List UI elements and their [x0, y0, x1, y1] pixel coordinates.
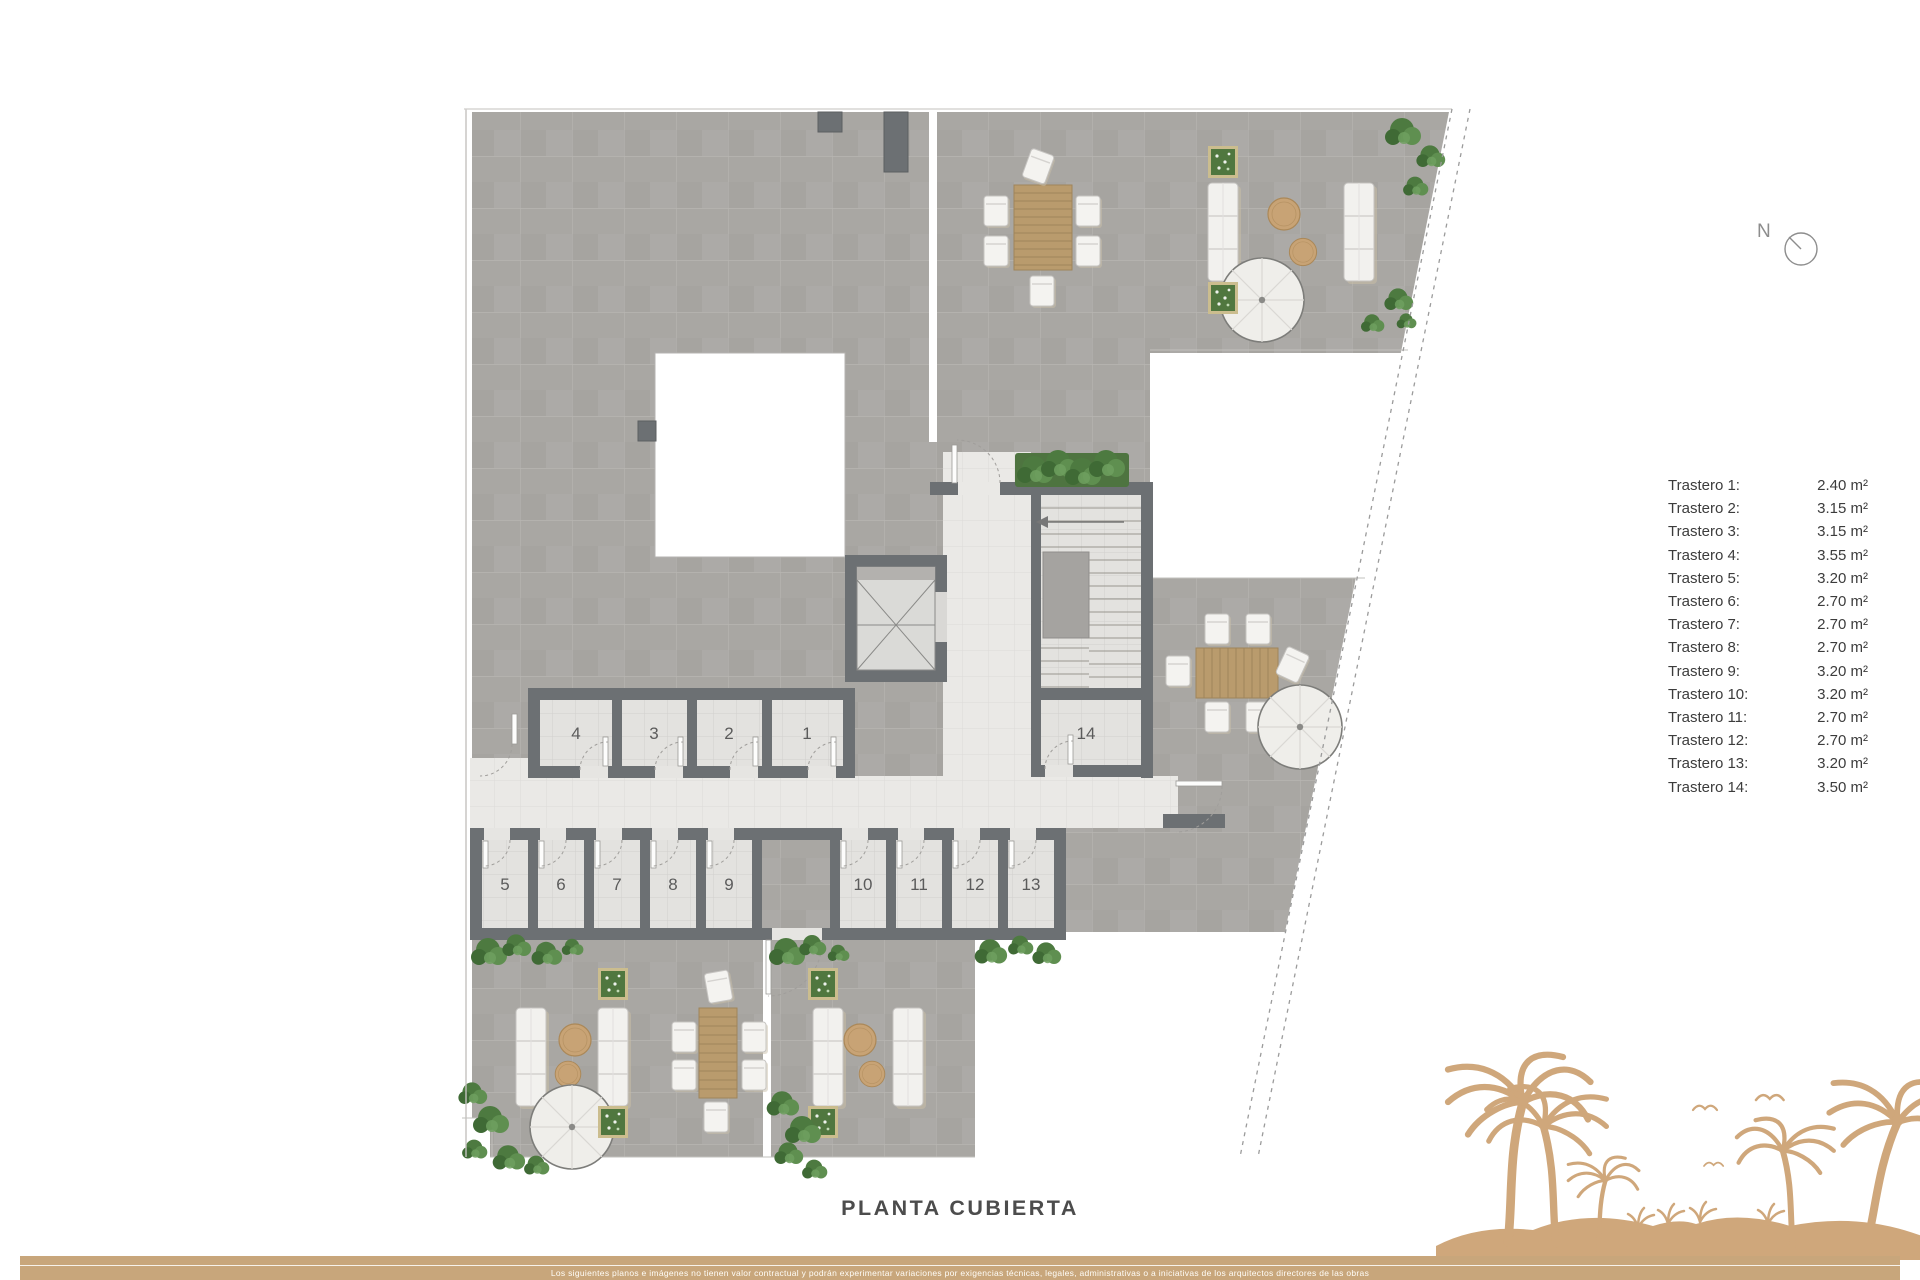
- round-table: [559, 1024, 591, 1056]
- legend-item-area: 3.20 m²: [1817, 660, 1868, 683]
- legend-item-area: 3.15 m²: [1817, 497, 1868, 520]
- legend-item-name: Trastero 6:: [1668, 590, 1740, 613]
- legend-row: Trastero 7:2.70 m²: [1668, 613, 1868, 636]
- chimney: [638, 421, 656, 441]
- legend-item-area: 2.40 m²: [1817, 474, 1868, 497]
- terrace-passage: [762, 828, 830, 940]
- planter-box: [1208, 282, 1238, 314]
- legend-item-area: 2.70 m²: [1817, 729, 1868, 752]
- legend-item-area: 3.20 m²: [1817, 752, 1868, 775]
- round-table: [1289, 238, 1316, 265]
- sofa: [813, 1008, 846, 1109]
- dining-table: [1196, 648, 1278, 698]
- room-number-label: 10: [854, 875, 873, 894]
- elevator: [857, 567, 935, 670]
- chair: [1166, 656, 1192, 688]
- legend-item-name: Trastero 8:: [1668, 636, 1740, 659]
- legend-item-name: Trastero 12:: [1668, 729, 1748, 752]
- legend-row: Trastero 5:3.20 m²: [1668, 567, 1868, 590]
- legend-item-name: Trastero 11:: [1668, 706, 1747, 729]
- round-table: [844, 1024, 876, 1056]
- planter-box: [808, 968, 838, 1000]
- legend-row: Trastero 12:2.70 m²: [1668, 729, 1868, 752]
- legend-row: Trastero 1:2.40 m²: [1668, 474, 1868, 497]
- compass-north-label: N: [1757, 221, 1771, 242]
- sofa: [893, 1008, 926, 1109]
- legend-item-name: Trastero 4:: [1668, 544, 1740, 567]
- palm-beach-graphic: [1436, 1055, 1920, 1260]
- round-table: [859, 1061, 885, 1087]
- room-number-label: 3: [649, 724, 658, 743]
- cutout-bottom-right: [975, 932, 1315, 1157]
- legend-item-name: Trastero 7:: [1668, 613, 1740, 636]
- legend-item-area: 2.70 m²: [1817, 636, 1868, 659]
- round-table: [1268, 198, 1300, 230]
- legend-item-name: Trastero 5:: [1668, 567, 1740, 590]
- legend-row: Trastero 4:3.55 m²: [1668, 544, 1868, 567]
- dining-table: [1014, 185, 1072, 270]
- chair: [672, 1060, 698, 1092]
- planter-box: [598, 968, 628, 1000]
- sofa: [598, 1008, 631, 1109]
- legend-row: Trastero 13:3.20 m²: [1668, 752, 1868, 775]
- grass-tuft: [1658, 1204, 1684, 1224]
- page-root: 1 2 3 4 5 6 7 8 9 10 11 12 13 14: [0, 0, 1920, 1280]
- room-number-label: 7: [612, 875, 621, 894]
- cutout-right: [1150, 353, 1480, 578]
- bird-icon: [1756, 1095, 1784, 1100]
- chimney: [884, 112, 908, 172]
- legend-panel: Trastero 1:2.40 m² Trastero 2:3.15 m² Tr…: [1668, 474, 1868, 799]
- room-number-label: 4: [571, 724, 580, 743]
- bush: [802, 1160, 827, 1179]
- bird-icon: [1704, 1163, 1723, 1166]
- legend-item-name: Trastero 13:: [1668, 752, 1748, 775]
- chair: [984, 236, 1010, 268]
- legend-row: Trastero 3:3.15 m²: [1668, 520, 1868, 543]
- room-number-label: 12: [966, 875, 985, 894]
- legend-item-area: 3.55 m²: [1817, 544, 1868, 567]
- round-table: [555, 1061, 581, 1087]
- legend-row: Trastero 10:3.20 m²: [1668, 683, 1868, 706]
- chimney: [818, 112, 842, 132]
- room-number-label: 2: [724, 724, 733, 743]
- parasol: [1258, 685, 1342, 769]
- sofa: [1344, 183, 1377, 284]
- room-number-label: 5: [500, 875, 509, 894]
- legend-item-name: Trastero 9:: [1668, 660, 1740, 683]
- legend-item-area: 2.70 m²: [1817, 590, 1868, 613]
- legend-row: Trastero 14:3.50 m²: [1668, 776, 1868, 799]
- footer-bar: Los siguientes planos e imágenes no tien…: [20, 1256, 1900, 1280]
- sofa: [516, 1008, 549, 1109]
- cutout-left: [655, 353, 845, 557]
- chair: [704, 969, 735, 1005]
- legend-item-area: 3.15 m²: [1817, 520, 1868, 543]
- palm-tree: [1448, 1055, 1591, 1242]
- grass-tuft: [1690, 1202, 1716, 1222]
- chair: [1076, 236, 1102, 268]
- legend-item-area: 3.20 m²: [1817, 567, 1868, 590]
- chair: [1030, 276, 1056, 308]
- chair: [984, 196, 1010, 228]
- legend-item-name: Trastero 2:: [1668, 497, 1740, 520]
- room-number-label: 8: [668, 875, 677, 894]
- room-number-label: 9: [724, 875, 733, 894]
- legend-item-area: 2.70 m²: [1817, 613, 1868, 636]
- legend-item-name: Trastero 3:: [1668, 520, 1740, 543]
- footer-divider: [20, 1265, 1900, 1266]
- room-number-label: 1: [802, 724, 811, 743]
- legend-row: Trastero 6:2.70 m²: [1668, 590, 1868, 613]
- legend-row: Trastero 9:3.20 m²: [1668, 660, 1868, 683]
- chair: [742, 1022, 768, 1054]
- expansion-joint-top: [929, 112, 937, 442]
- bird-icon: [1693, 1106, 1717, 1110]
- legend-item-name: Trastero 10:: [1668, 683, 1748, 706]
- expansion-joint-mid: [835, 440, 843, 555]
- room-number-label: 13: [1022, 875, 1041, 894]
- legend-item-area: 3.20 m²: [1817, 683, 1868, 706]
- chair: [672, 1022, 698, 1054]
- room-number-label: 14: [1077, 724, 1096, 743]
- chair: [1205, 702, 1231, 734]
- chair: [1246, 614, 1272, 646]
- legend-item-name: Trastero 1:: [1668, 474, 1740, 497]
- legend-item-area: 3.50 m²: [1817, 776, 1868, 799]
- chair: [1076, 196, 1102, 228]
- chair: [704, 1102, 730, 1134]
- floor-plan: 1 2 3 4 5 6 7 8 9 10 11 12 13 14: [0, 0, 1920, 1280]
- legend-row: Trastero 2:3.15 m²: [1668, 497, 1868, 520]
- plan-title: PLANTA CUBIERTA: [800, 1196, 1120, 1221]
- legend-row: Trastero 11:2.70 m²: [1668, 706, 1868, 729]
- footer-disclaimer: Los siguientes planos e imágenes no tien…: [20, 1268, 1900, 1279]
- compass: N: [1757, 221, 1817, 265]
- room-number-label: 11: [910, 875, 928, 894]
- chair: [1205, 614, 1231, 646]
- legend-item-area: 2.70 m²: [1817, 706, 1868, 729]
- planter-box: [1208, 146, 1238, 178]
- legend-row: Trastero 8:2.70 m²: [1668, 636, 1868, 659]
- room-number-label: 6: [556, 875, 565, 894]
- chair: [742, 1060, 768, 1092]
- legend-item-name: Trastero 14:: [1668, 776, 1748, 799]
- dining-table: [699, 1008, 737, 1098]
- planter-box: [598, 1106, 628, 1138]
